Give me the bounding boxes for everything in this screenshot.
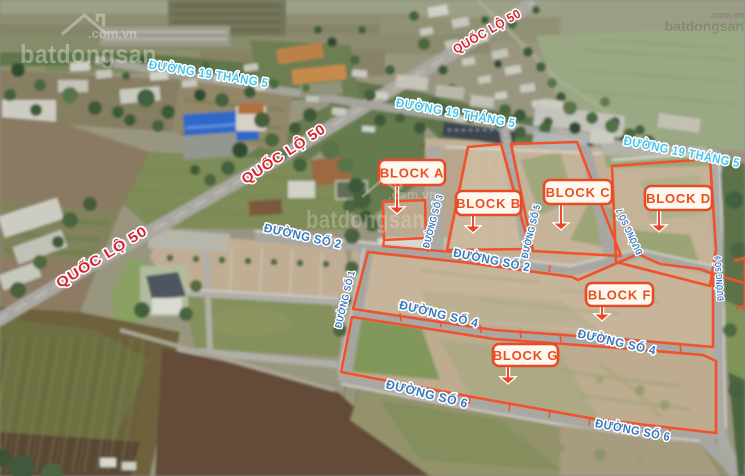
svg-text:batdongsan: batdongsan [306, 206, 425, 234]
svg-text:BLOCK G: BLOCK G [493, 348, 559, 363]
svg-text:BLOCK F: BLOCK F [588, 287, 651, 302]
svg-text:batdongsan: batdongsan [20, 39, 157, 69]
svg-text:BLOCK C: BLOCK C [546, 185, 611, 200]
svg-text:BLOCK A: BLOCK A [380, 165, 444, 180]
svg-text:BLOCK D: BLOCK D [646, 191, 711, 206]
svg-text:batdongsan: batdongsan [665, 18, 744, 34]
svg-text:BLOCK B: BLOCK B [456, 196, 521, 211]
